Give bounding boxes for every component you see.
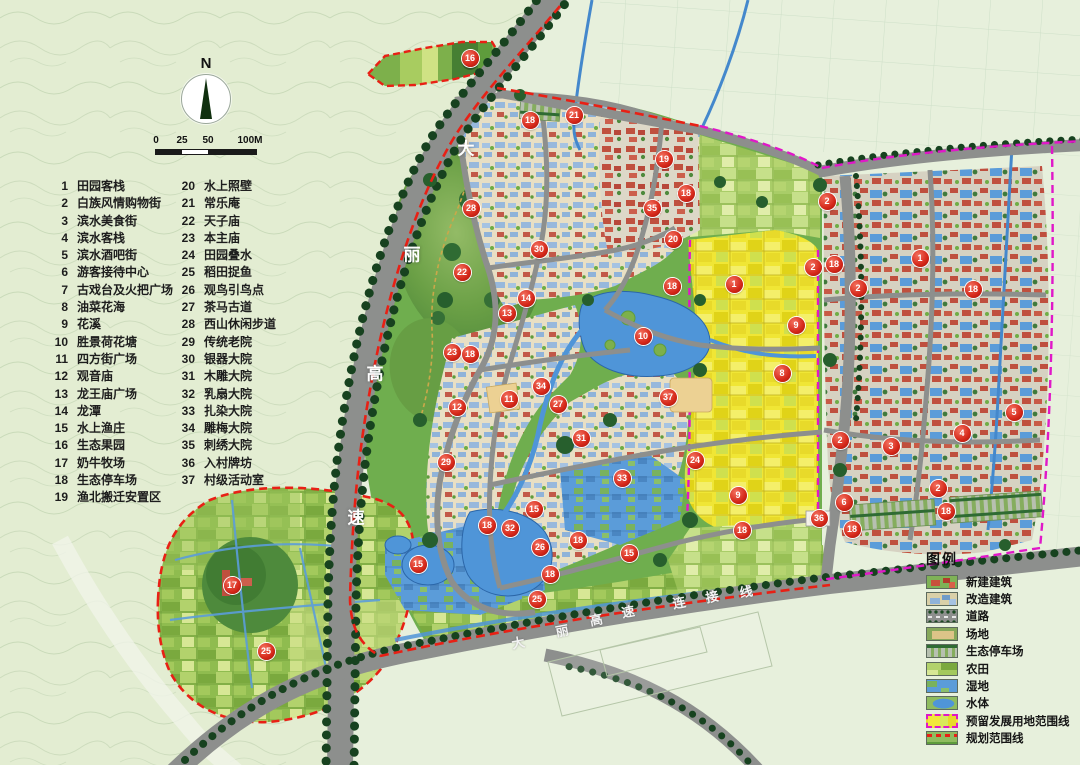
map-marker-35[interactable]: 35: [644, 200, 661, 217]
map-marker-28[interactable]: 28: [463, 200, 480, 217]
poi-label: 西山休闲步道: [204, 316, 276, 333]
poi-list-item: 33扎染大院: [175, 403, 276, 420]
poi-label: 村级活动室: [204, 472, 264, 489]
poi-list-item: 14龙潭: [48, 403, 173, 420]
legend-item-label: 水体: [966, 695, 989, 711]
poi-label: 木雕大院: [204, 368, 252, 385]
expressway-label-char: 速: [348, 504, 365, 529]
map-marker-18[interactable]: 18: [965, 281, 982, 298]
poi-number: 3: [48, 213, 68, 230]
scale-tick-label: 100M: [237, 135, 262, 146]
map-marker-16[interactable]: 16: [462, 50, 479, 67]
poi-label: 天子庙: [204, 213, 240, 230]
poi-label: 传统老院: [204, 334, 252, 351]
poi-number: 11: [48, 351, 68, 368]
compass-dial: [181, 74, 231, 124]
poi-list-item: 11四方街广场: [48, 351, 173, 368]
map-marker-2[interactable]: 2: [930, 480, 947, 497]
poi-list-item: 24田园叠水: [175, 247, 276, 264]
poi-label: 稻田捉鱼: [204, 264, 252, 281]
poi-number: 7: [48, 282, 68, 299]
map-marker-14[interactable]: 14: [518, 290, 535, 307]
legend-item-label: 新建建筑: [966, 574, 1012, 590]
map-marker-2[interactable]: 2: [819, 193, 836, 210]
poi-list-item: 4滨水客栈: [48, 230, 173, 247]
legend-item: 生态停车场: [926, 643, 1070, 660]
poi-list-item: 37村级活动室: [175, 472, 276, 489]
poi-number: 12: [48, 368, 68, 385]
poi-number: 16: [48, 437, 68, 454]
map-marker-18[interactable]: 18: [938, 503, 955, 520]
map-marker-29[interactable]: 29: [438, 454, 455, 471]
map-marker-37[interactable]: 37: [660, 389, 677, 406]
poi-list-item: 30银器大院: [175, 351, 276, 368]
farmland-swatch: [926, 662, 958, 676]
poi-list-item: 32乳扇大院: [175, 386, 276, 403]
map-marker-31[interactable]: 31: [573, 430, 590, 447]
poi-number: 14: [48, 403, 68, 420]
poi-list-item: 10胜景荷花塘: [48, 334, 173, 351]
map-marker-23[interactable]: 23: [444, 344, 461, 361]
map-marker-5[interactable]: 5: [1006, 404, 1023, 421]
poi-label: 滨水酒吧街: [77, 247, 137, 264]
poi-label: 龙王庙广场: [77, 386, 137, 403]
poi-list-item: 7古戏台及火把广场: [48, 282, 173, 299]
legend-item: 改造建筑: [926, 590, 1070, 607]
legend-items: 新建建筑改造建筑道路场地生态停车场农田湿地水体预留发展用地范围线规划范围线: [926, 573, 1070, 747]
poi-number: 9: [48, 316, 68, 333]
poi-number: 5: [48, 247, 68, 264]
poi-label: 扎染大院: [204, 403, 252, 420]
poi-label: 油菜花海: [77, 299, 125, 316]
poi-label: 田园客栈: [77, 178, 125, 195]
reserved-line-swatch: [926, 714, 958, 728]
poi-label: 四方街广场: [77, 351, 137, 368]
map-marker-33[interactable]: 33: [614, 470, 631, 487]
poi-number: 36: [175, 455, 195, 472]
map-marker-15[interactable]: 15: [526, 501, 543, 518]
poi-number: 25: [175, 264, 195, 281]
poi-list-item: 29传统老院: [175, 334, 276, 351]
poi-label: 生态停车场: [77, 472, 137, 489]
compass: N: [178, 55, 234, 124]
map-marker-18[interactable]: 18: [570, 532, 587, 549]
poi-number: 24: [175, 247, 195, 264]
map-marker-18[interactable]: 18: [462, 346, 479, 363]
map-marker-30[interactable]: 30: [531, 241, 548, 258]
poi-number: 35: [175, 437, 195, 454]
poi-label: 滨水美食街: [77, 213, 137, 230]
renovated-building-swatch: [926, 592, 958, 606]
scale-tick-label: 0: [153, 135, 159, 146]
poi-list-item: 34雕梅大院: [175, 420, 276, 437]
legend-item: 道路: [926, 608, 1070, 625]
poi-list-item: 1田园客栈: [48, 178, 173, 195]
poi-label: 水上渔庄: [77, 420, 125, 437]
map-marker-15[interactable]: 15: [410, 556, 427, 573]
poi-number: 8: [48, 299, 68, 316]
poi-label: 银器大院: [204, 351, 252, 368]
legend-item-label: 场地: [966, 626, 989, 642]
expressway-label-char: 高: [367, 360, 384, 385]
map-marker-10[interactable]: 10: [635, 328, 652, 345]
map-marker-18[interactable]: 18: [826, 256, 843, 273]
poi-list-item: 31木雕大院: [175, 368, 276, 385]
legend-item: 规划范围线: [926, 730, 1070, 747]
poi-list-item: 16生态果园: [48, 437, 173, 454]
poi-list-item: 27茶马古道: [175, 299, 276, 316]
poi-list-item: 36入村牌坊: [175, 455, 276, 472]
poi-label: 田园叠水: [204, 247, 252, 264]
poi-label: 游客接待中心: [77, 264, 149, 281]
legend-item-label: 生态停车场: [966, 643, 1024, 659]
poi-label: 雕梅大院: [204, 420, 252, 437]
map-marker-19[interactable]: 19: [656, 151, 673, 168]
legend-item: 水体: [926, 695, 1070, 712]
map-marker-34[interactable]: 34: [533, 378, 550, 395]
planning-map: N 02550100M 1田园客栈2白族风情购物街3滨水美食街4滨水客栈5滨水酒…: [0, 0, 1080, 765]
poi-number: 6: [48, 264, 68, 281]
map-marker-4[interactable]: 4: [954, 425, 971, 442]
poi-number: 17: [48, 455, 68, 472]
map-marker-32[interactable]: 32: [502, 520, 519, 537]
legend-item: 预留发展用地范围线: [926, 712, 1070, 729]
poi-label: 白族风情购物街: [77, 195, 161, 212]
poi-label: 本主庙: [204, 230, 240, 247]
map-marker-18[interactable]: 18: [479, 517, 496, 534]
expressway-label-char: 丽: [404, 241, 421, 266]
eco-parking-swatch: [926, 644, 958, 658]
map-marker-18[interactable]: 18: [844, 521, 861, 538]
poi-label: 茶马古道: [204, 299, 252, 316]
north-label: N: [178, 55, 234, 72]
map-marker-27[interactable]: 27: [550, 396, 567, 413]
map-marker-2[interactable]: 2: [832, 432, 849, 449]
poi-number: 37: [175, 472, 195, 489]
poi-number: 30: [175, 351, 195, 368]
map-marker-13[interactable]: 13: [499, 305, 516, 322]
poi-list-item: 3滨水美食街: [48, 213, 173, 230]
poi-label: 常乐庵: [204, 195, 240, 212]
poi-number: 20: [175, 178, 195, 195]
poi-list-item: 23本主庙: [175, 230, 276, 247]
legend: 图例 新建建筑改造建筑道路场地生态停车场农田湿地水体预留发展用地范围线规划范围线: [926, 549, 1070, 747]
poi-label: 胜景荷花塘: [77, 334, 137, 351]
poi-label: 滨水客栈: [77, 230, 125, 247]
legend-item-label: 改造建筑: [966, 591, 1012, 607]
poi-label: 观音庙: [77, 368, 113, 385]
map-marker-24[interactable]: 24: [687, 452, 704, 469]
poi-number: 10: [48, 334, 68, 351]
map-marker-17[interactable]: 17: [224, 577, 241, 594]
map-marker-1[interactable]: 1: [912, 250, 929, 267]
poi-list-item: 6游客接待中心: [48, 264, 173, 281]
poi-number: 29: [175, 334, 195, 351]
poi-list-item: 35刺绣大院: [175, 437, 276, 454]
legend-item: 新建建筑: [926, 573, 1070, 590]
poi-list-item: 17奶牛牧场: [48, 455, 173, 472]
poi-number: 31: [175, 368, 195, 385]
scale-tick-label: 50: [202, 135, 213, 146]
poi-number: 2: [48, 195, 68, 212]
map-marker-2[interactable]: 2: [850, 280, 867, 297]
poi-label: 奶牛牧场: [77, 455, 125, 472]
poi-number: 32: [175, 386, 195, 403]
poi-list-column-1: 1田园客栈2白族风情购物街3滨水美食街4滨水客栈5滨水酒吧街6游客接待中心7古戏…: [48, 178, 173, 507]
poi-list-item: 28西山休闲步道: [175, 316, 276, 333]
scale-tick-label: 25: [176, 135, 187, 146]
expressway-label-char: 大: [458, 135, 475, 160]
poi-list-item: 2白族风情购物街: [48, 195, 173, 212]
map-marker-2[interactable]: 2: [805, 259, 822, 276]
map-marker-8[interactable]: 8: [774, 365, 791, 382]
scale-labels: 02550100M: [152, 135, 277, 147]
poi-label: 花溪: [77, 316, 101, 333]
poi-label: 龙潭: [77, 403, 101, 420]
map-marker-36[interactable]: 36: [811, 510, 828, 527]
legend-item: 场地: [926, 625, 1070, 642]
poi-number: 34: [175, 420, 195, 437]
map-marker-18[interactable]: 18: [734, 522, 751, 539]
legend-item: 农田: [926, 660, 1070, 677]
poi-number: 28: [175, 316, 195, 333]
map-marker-25[interactable]: 25: [258, 643, 275, 660]
legend-item-label: 道路: [966, 608, 989, 624]
poi-list-item: 25稻田捉鱼: [175, 264, 276, 281]
poi-label: 观鸟引鸟点: [204, 282, 264, 299]
legend-item: 湿地: [926, 677, 1070, 694]
poi-label: 古戏台及火把广场: [77, 282, 173, 299]
poi-list-item: 18生态停车场: [48, 472, 173, 489]
poi-number: 19: [48, 489, 68, 506]
map-marker-26[interactable]: 26: [532, 539, 549, 556]
map-marker-1[interactable]: 1: [726, 276, 743, 293]
poi-label: 生态果园: [77, 437, 125, 454]
legend-item-label: 湿地: [966, 678, 989, 694]
poi-list-item: 8油菜花海: [48, 299, 173, 316]
poi-label: 入村牌坊: [204, 455, 252, 472]
compass-needle-icon: [200, 78, 212, 119]
map-marker-20[interactable]: 20: [665, 231, 682, 248]
scale-bar: 02550100M: [152, 135, 277, 159]
poi-list-item: 12观音庙: [48, 368, 173, 385]
poi-number: 21: [175, 195, 195, 212]
poi-number: 13: [48, 386, 68, 403]
legend-title: 图例: [926, 549, 1070, 569]
legend-item-label: 农田: [966, 661, 989, 677]
map-marker-3[interactable]: 3: [883, 438, 900, 455]
poi-list-item: 26观鸟引鸟点: [175, 282, 276, 299]
map-marker-9[interactable]: 9: [788, 317, 805, 334]
map-marker-11[interactable]: 11: [501, 391, 518, 408]
map-marker-18[interactable]: 18: [542, 566, 559, 583]
poi-number: 27: [175, 299, 195, 316]
map-marker-12[interactable]: 12: [449, 399, 466, 416]
map-marker-21[interactable]: 21: [566, 107, 583, 124]
map-marker-18[interactable]: 18: [664, 278, 681, 295]
poi-number: 15: [48, 420, 68, 437]
poi-number: 18: [48, 472, 68, 489]
poi-number: 1: [48, 178, 68, 195]
map-marker-18[interactable]: 18: [522, 112, 539, 129]
poi-number: 33: [175, 403, 195, 420]
poi-label: 水上照壁: [204, 178, 252, 195]
poi-number: 26: [175, 282, 195, 299]
poi-list-item: 19渔北搬迁安置区: [48, 489, 173, 506]
poi-number: 23: [175, 230, 195, 247]
site-swatch: [926, 627, 958, 641]
poi-list-item: 22天子庙: [175, 213, 276, 230]
legend-item-label: 规划范围线: [966, 730, 1024, 746]
legend-item-label: 预留发展用地范围线: [966, 713, 1070, 729]
map-marker-22[interactable]: 22: [454, 264, 471, 281]
poi-list-item: 15水上渔庄: [48, 420, 173, 437]
poi-label: 刺绣大院: [204, 437, 252, 454]
scale-bar-rule: [155, 149, 257, 155]
poi-list-column-2: 20水上照壁21常乐庵22天子庙23本主庙24田园叠水25稻田捉鱼26观鸟引鸟点…: [175, 178, 276, 489]
poi-list-item: 21常乐庵: [175, 195, 276, 212]
wetland-swatch: [926, 679, 958, 693]
map-marker-25[interactable]: 25: [529, 591, 546, 608]
map-marker-9[interactable]: 9: [730, 487, 747, 504]
map-marker-18[interactable]: 18: [678, 185, 695, 202]
new-building-swatch: [926, 575, 958, 589]
poi-list-item: 9花溪: [48, 316, 173, 333]
map-marker-15[interactable]: 15: [621, 545, 638, 562]
poi-label: 渔北搬迁安置区: [77, 489, 161, 506]
poi-list-item: 20水上照壁: [175, 178, 276, 195]
poi-number: 4: [48, 230, 68, 247]
road-swatch: [926, 609, 958, 623]
poi-list-item: 13龙王庙广场: [48, 386, 173, 403]
water-swatch: [926, 696, 958, 710]
poi-number: 22: [175, 213, 195, 230]
poi-label: 乳扇大院: [204, 386, 252, 403]
poi-list-item: 5滨水酒吧街: [48, 247, 173, 264]
planning-line-swatch: [926, 731, 958, 745]
map-marker-6[interactable]: 6: [836, 494, 853, 511]
